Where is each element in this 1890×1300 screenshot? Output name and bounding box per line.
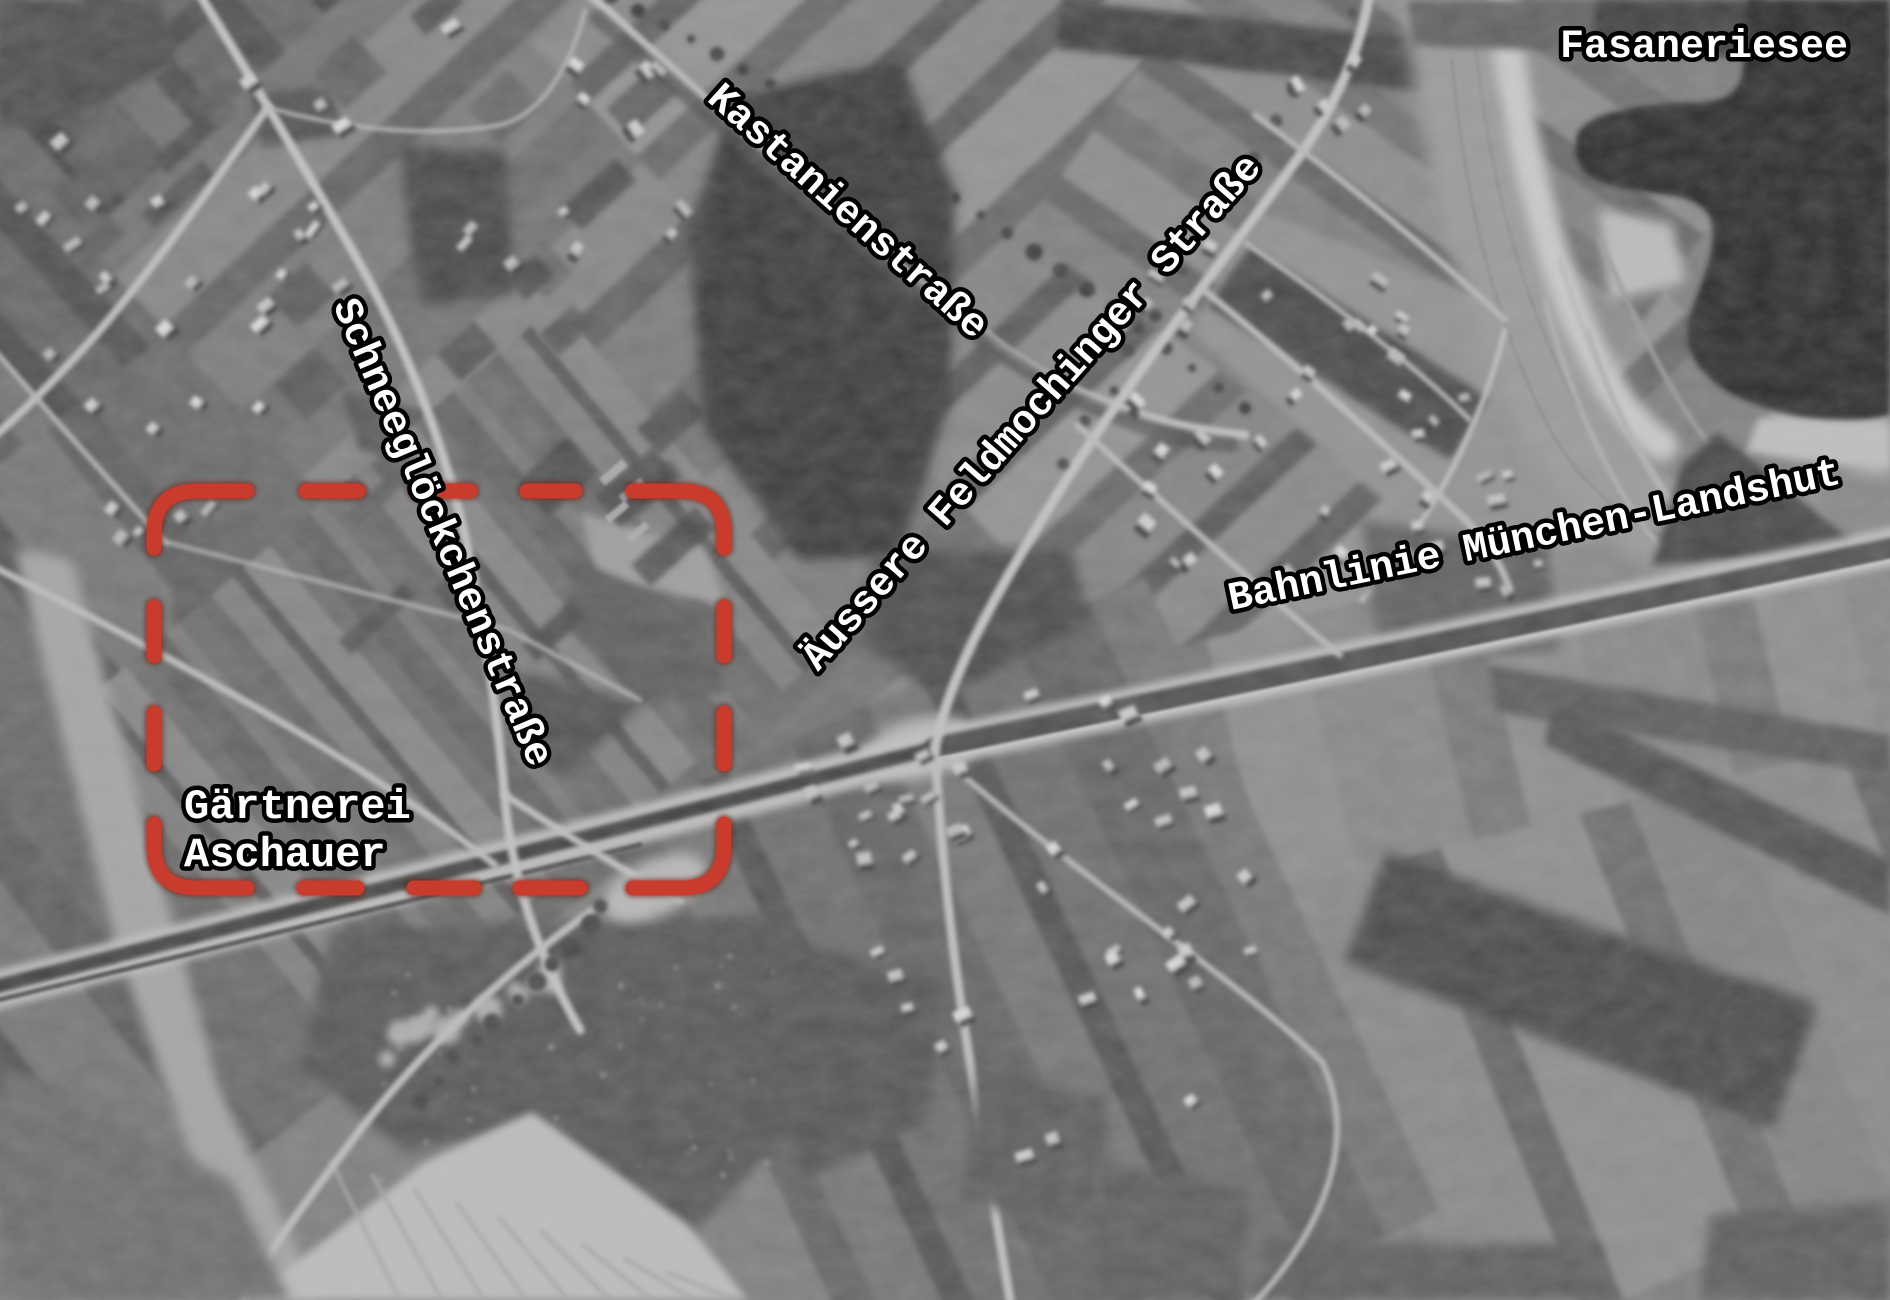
svg-text:Gärtnerei: Gärtnerei — [184, 783, 411, 831]
svg-text:Aschauer: Aschauer — [184, 831, 386, 879]
svg-text:Fasaneriesee: Fasaneriesee — [1560, 25, 1848, 70]
